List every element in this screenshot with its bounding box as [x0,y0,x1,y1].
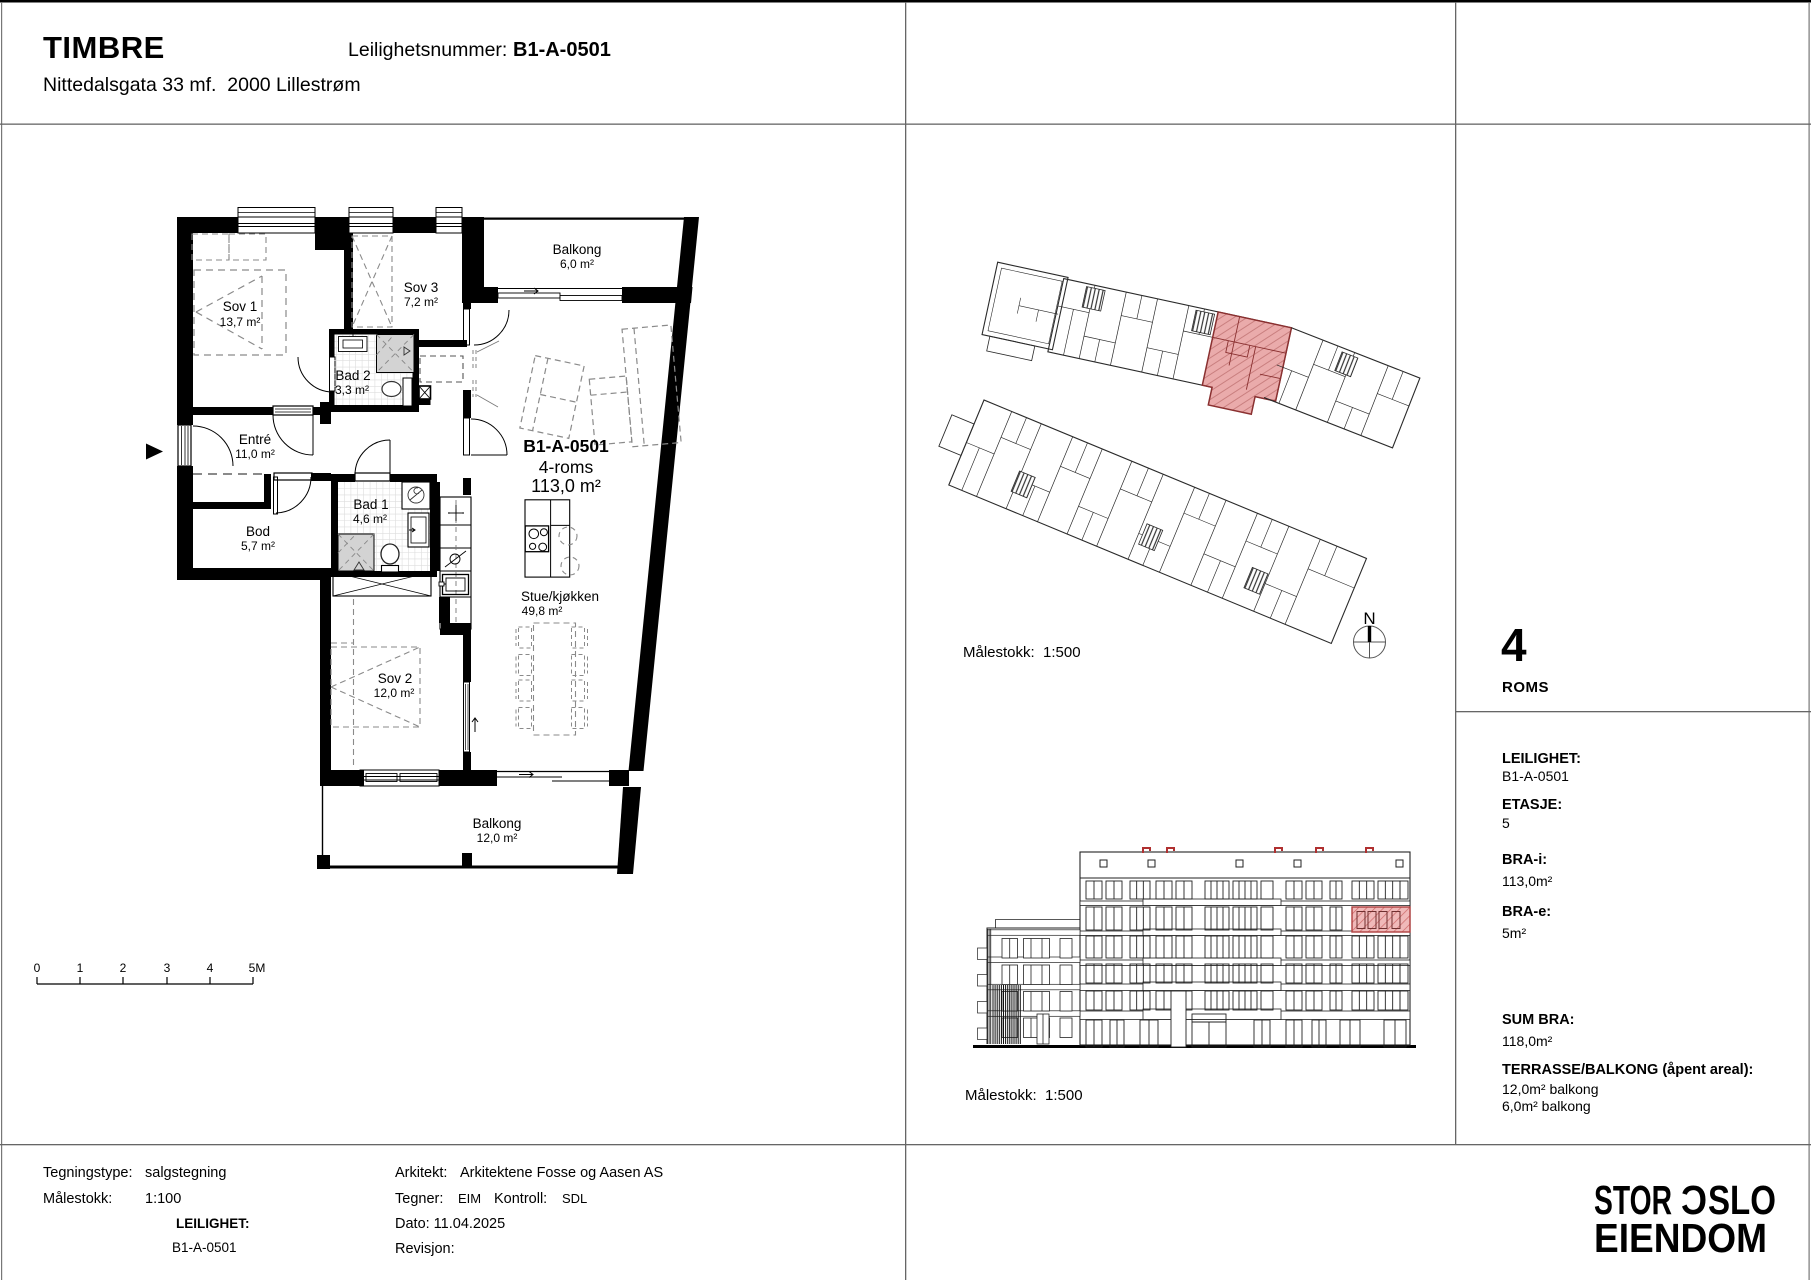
svg-text:SUM BRA:: SUM BRA: [1502,1012,1575,1028]
svg-text:B1-A-0501: B1-A-0501 [1502,768,1569,784]
svg-text:ROMS: ROMS [1502,679,1549,696]
svg-text:Balkong: Balkong [473,816,522,831]
svg-text:Tegner:: Tegner: [395,1191,443,1207]
svg-text:Dato: 11.04.2025: Dato: 11.04.2025 [395,1216,505,1232]
svg-text:113,0 m²: 113,0 m² [531,476,601,496]
svg-text:Sov 2: Sov 2 [378,671,413,686]
svg-text:13,7 m²: 13,7 m² [220,315,261,329]
svg-text:Bad 1: Bad 1 [353,497,388,512]
svg-text:3: 3 [164,961,171,975]
svg-text:5: 5 [1502,815,1510,831]
svg-text:N: N [1363,609,1375,628]
svg-text:Nittedalsgata 33 mf. 2000 Lil: Nittedalsgata 33 mf. 2000 Lillestrøm [43,74,361,96]
svg-text:118,0m²: 118,0m² [1502,1033,1553,1049]
svg-text:5m²: 5m² [1502,925,1526,941]
svg-text:B1-A-0501: B1-A-0501 [523,436,609,456]
svg-text:BRA-i:: BRA-i: [1502,852,1547,868]
svg-text:5M: 5M [249,961,266,975]
svg-text:Arkitekt:: Arkitekt: [395,1165,447,1181]
svg-text:4: 4 [207,961,214,975]
svg-text:EIM: EIM [458,1191,481,1206]
svg-text:Målestokk:: Målestokk: [43,1191,112,1207]
svg-text:LEILIGHET:: LEILIGHET: [176,1216,250,1231]
svg-text:ETASJE:: ETASJE: [1502,797,1562,813]
svg-text:5,7 m²: 5,7 m² [241,539,275,553]
svg-text:12,0 m²: 12,0 m² [374,686,415,700]
svg-text:4,6 m²: 4,6 m² [353,512,387,526]
svg-text:Entré: Entré [239,432,271,447]
svg-text:Stue/kjøkken: Stue/kjøkken [521,589,599,604]
svg-text:11,0 m²: 11,0 m² [235,447,275,461]
svg-text:Arkitektene Fosse og Aasen AS: Arkitektene Fosse og Aasen AS [460,1165,663,1181]
svg-text:SDL: SDL [562,1191,587,1206]
svg-text:Målestokk: 1:500: Målestokk: 1:500 [963,644,1081,661]
svg-text:B1-A-0501: B1-A-0501 [513,39,611,61]
svg-text:49,8 m²: 49,8 m² [522,604,563,618]
svg-text:Sov 3: Sov 3 [404,280,439,295]
svg-text:6,0m² balkong: 6,0m² balkong [1502,1098,1591,1114]
svg-text:Balkong: Balkong [553,242,602,257]
svg-text:4-roms: 4-roms [539,457,594,477]
svg-text:1: 1 [77,961,84,975]
svg-text:Sov 1: Sov 1 [223,299,258,314]
svg-text:6,0 m²: 6,0 m² [560,257,594,271]
svg-text:12,0m² balkong: 12,0m² balkong [1502,1081,1599,1097]
svg-text:Målestokk: 1:500: Målestokk: 1:500 [965,1087,1083,1104]
svg-text:2: 2 [120,961,127,975]
svg-text:BRA-e:: BRA-e: [1502,904,1551,920]
svg-text:Leilighetsnummer:: Leilighetsnummer: [348,39,507,61]
svg-text:3,3 m²: 3,3 m² [335,383,369,397]
svg-text:TERRASSE/BALKONG (åpent areal): TERRASSE/BALKONG (åpent areal): [1502,1062,1753,1078]
svg-text:Revisjon:: Revisjon: [395,1241,455,1257]
svg-text:4: 4 [1501,619,1527,671]
svg-text:12,0 m²: 12,0 m² [477,831,518,845]
svg-text:Tegningstype:: Tegningstype: [43,1165,132,1181]
svg-text:TIMBRE: TIMBRE [43,30,165,65]
svg-text:Bad 2: Bad 2 [335,368,370,383]
svg-text:7,2 m²: 7,2 m² [404,295,438,309]
svg-text:LEILIGHET:: LEILIGHET: [1502,751,1581,767]
svg-text:Kontroll:: Kontroll: [494,1191,547,1207]
svg-text:1:100: 1:100 [145,1191,181,1207]
svg-text:Bod: Bod [246,524,270,539]
svg-text:EIENDOM: EIENDOM [1594,1215,1767,1261]
svg-text:salgstegning: salgstegning [145,1165,226,1181]
svg-text:113,0m²: 113,0m² [1502,873,1553,889]
svg-text:0: 0 [34,961,41,975]
svg-text:B1-A-0501: B1-A-0501 [172,1240,237,1255]
